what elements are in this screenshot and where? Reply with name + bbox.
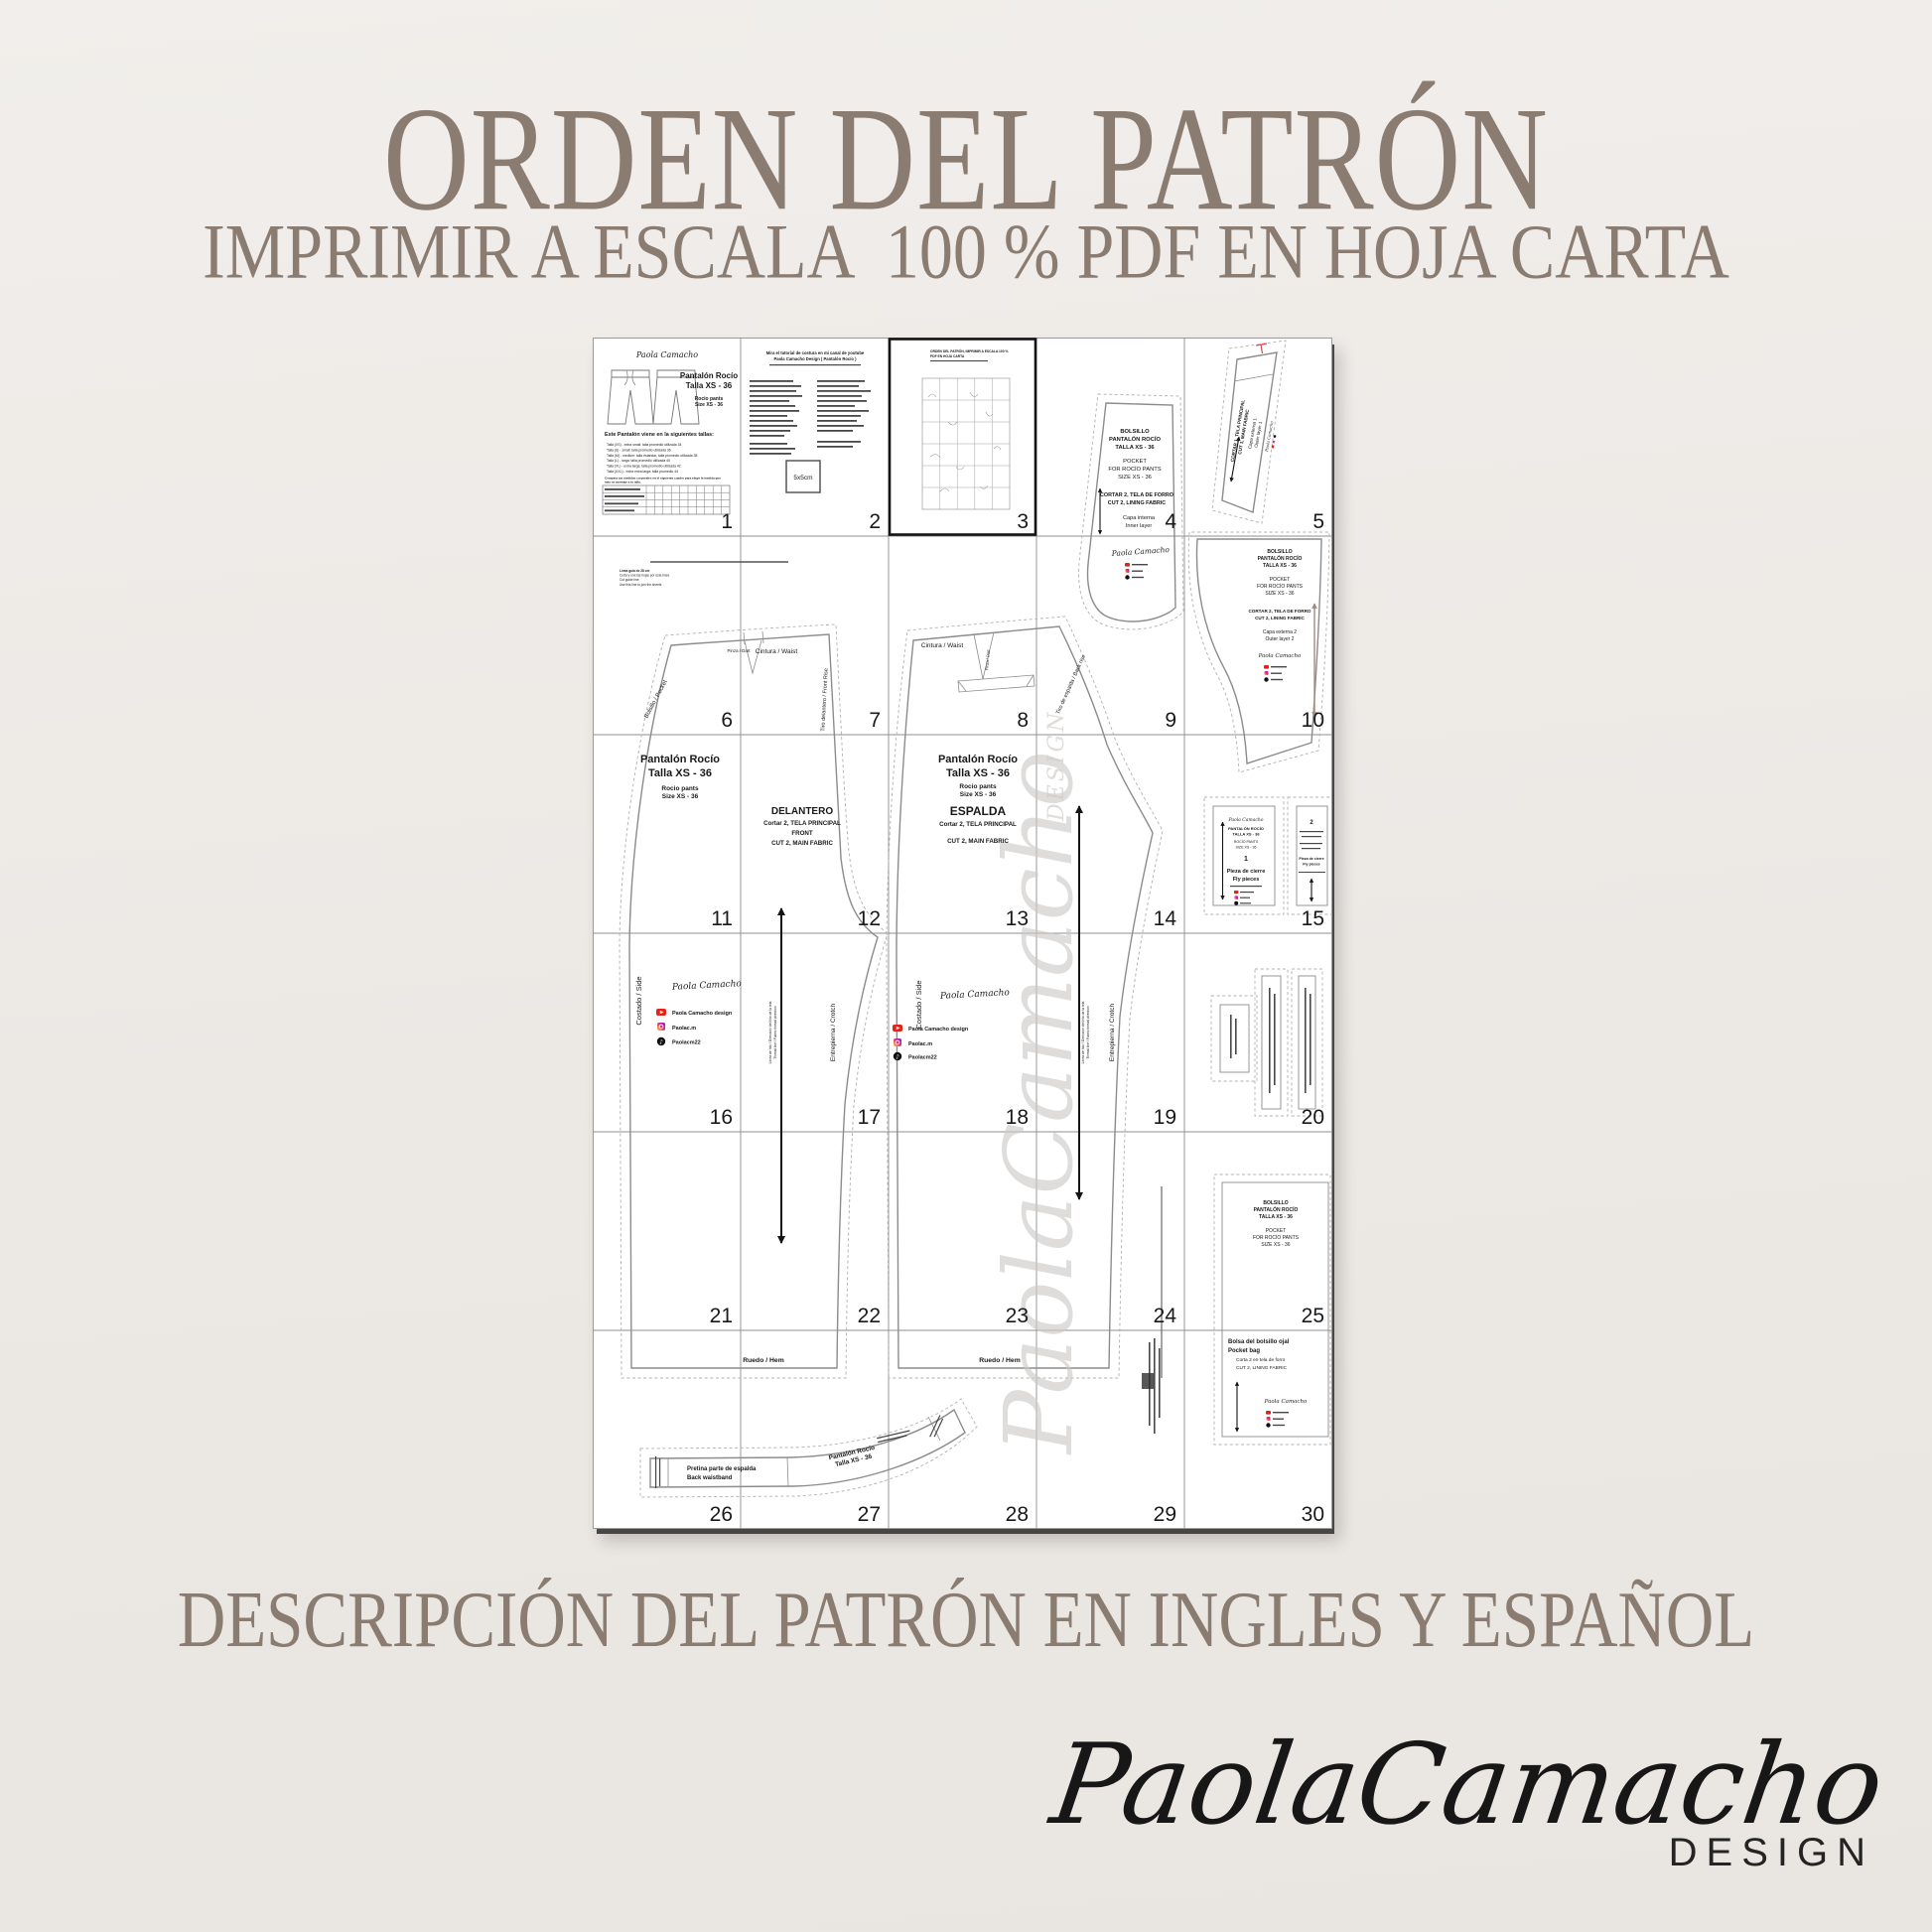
pocket-outer-line: CORTAR 2, TELA DE FORRO: [1248, 609, 1311, 614]
pocket-bag-welt-line: Corta 2 en tela de forro: [1236, 1357, 1286, 1363]
mini-piece-squiggle: [994, 447, 1001, 450]
page1-info: Paola Camacho Pantalón Rocío Talla XS - …: [605, 350, 738, 483]
sizes-heading: Este Pantalón viene en la siguientes tal…: [605, 432, 714, 438]
pocket-bag-welt-line: CUT 2, LINING FABRIC: [1236, 1365, 1288, 1371]
micro-text-bar: [1230, 1015, 1232, 1058]
guide-note: Cut guide line: [620, 578, 639, 582]
micro-text-bar: [1159, 1348, 1161, 1418]
page-number: 6: [721, 709, 733, 732]
test-square-label: 5x5cm: [793, 475, 812, 482]
waistband-front-piece: CORTAR 1, TELA PRINCIPAL CUT 1, MAIN FAB…: [1212, 341, 1286, 523]
micro-text-bar: [817, 385, 859, 387]
pocket-outer-line: CUT 2, LINING FABRIC: [1255, 616, 1305, 621]
micro-text-bar: [1310, 994, 1311, 1085]
youtube-icon: [1266, 1411, 1271, 1415]
footer-description: DESCRIPCIÓN DEL PATRÓN EN INGLES Y ESPAÑ…: [0, 1575, 1932, 1666]
micro-text-bar: [1269, 988, 1271, 1093]
order-heading: ORDEN DEL PATRÓN, IMPRIMIR A ESCALA 100 …: [930, 348, 1008, 353]
pocket-outer-line: SIZE XS - 36: [1265, 591, 1294, 597]
pocket-inner-line: Inner layer: [1126, 523, 1153, 529]
join-guide: Línea guía de 28 cm Corta y une las hoja…: [620, 562, 788, 587]
page-number: 23: [1006, 1305, 1029, 1327]
pocket-outer-line: Outer layer 2: [1266, 636, 1295, 642]
social-links-mini: [1234, 891, 1254, 905]
page-number: 12: [858, 907, 881, 930]
page-number: 22: [858, 1305, 881, 1327]
order-heading: PDF EN HOJA CARTA: [930, 354, 965, 358]
pocket-bag-line: SIZE XS - 36: [1261, 1242, 1290, 1248]
tiktok-icon: [1234, 901, 1238, 905]
pocket-inner-line: SIZE XS - 36: [1118, 475, 1152, 481]
label-dart-back: Pinza / Dart: [984, 648, 991, 670]
pattern-name-es: Pantalón Rocío: [680, 371, 738, 380]
micro-text-bar: [605, 502, 638, 504]
front-size: Talla XS - 36: [648, 767, 712, 779]
back-size: Talla XS - 36: [946, 767, 1010, 779]
micro-text-bar: [817, 380, 865, 382]
brand-signature: PaolaCamacho: [1045, 1729, 1890, 1841]
micro-text-bar: [817, 425, 864, 427]
mini-piece-squiggle: [970, 392, 978, 397]
mini-piece-squiggle: [986, 412, 993, 416]
back-name: Pantalón Rocío: [938, 754, 1018, 765]
youtube-icon: [1264, 665, 1269, 669]
micro-text-bar: [817, 415, 861, 417]
front-outline: [629, 634, 878, 1368]
brand-logo: PaolaCamacho DESIGN: [1045, 1729, 1874, 1875]
fly-label: Fly pieces: [1233, 877, 1260, 883]
svg-text:♪: ♪: [896, 1053, 899, 1060]
pattern-size-en: Size XS - 36: [695, 402, 723, 408]
micro-text-bar: [750, 400, 789, 402]
signature-script: Paola Camacho: [1110, 545, 1170, 558]
signature-script: Paola Camacho: [635, 350, 698, 359]
micro-text-bar: [1149, 1342, 1151, 1426]
guide-note: Use this line to join the sheets: [620, 583, 662, 587]
micro-text-bar: [1274, 994, 1276, 1085]
micro-text-bar: [750, 453, 791, 455]
front-piece-label-en: FRONT: [791, 830, 813, 837]
label-waist-front: Cintura / Waist: [756, 648, 798, 655]
label-grainline: Línea de hilo / Dirección del hilo de la…: [1081, 1002, 1085, 1064]
front-name-en: Rocio pants: [661, 785, 699, 792]
back-size-en: Size XS - 36: [960, 791, 997, 798]
fly-name: SIZE XS - 36: [1236, 846, 1257, 850]
front-dart: [745, 640, 761, 673]
label-back-rise: Tiro de espalda / Back rise: [1055, 654, 1087, 716]
page-number: 21: [710, 1305, 733, 1327]
size-line: Talla (L) - larga: talla promedio utiliz…: [607, 459, 670, 463]
micro-text-bars: [603, 378, 1311, 1434]
pocket-bag-welt-line: Pocket bag: [1228, 1348, 1260, 1354]
back-piece-label: ESPALDA: [950, 804, 1007, 818]
waistband-back-piece: Pretina parte de espalda Back waistband …: [640, 1399, 977, 1497]
label-grainline: Thread line / Fabric thread direction: [1086, 1006, 1090, 1059]
pocket-bag-welt-line: Bolsa del bolsillo ojal: [1228, 1339, 1290, 1345]
print-instruction: IMPRIMIR A ESCALA 100 % PDF EN HOJA CART…: [0, 207, 1932, 297]
instagram-icon: [657, 1023, 665, 1031]
front-cut-en: CUT 2, MAIN FABRIC: [771, 840, 833, 847]
label-grainline: Línea de hilo / Dirección del hilo de la…: [768, 1002, 772, 1064]
pocket-outer-line: Capa externa 2: [1263, 629, 1297, 635]
instagram-icon: [1234, 896, 1238, 899]
fly-name: PANTALÓN ROCÍO: [1228, 826, 1264, 831]
waistband-back-label: Pretina parte de espalda: [687, 1466, 757, 1472]
size-line: Talla (XXL) - extra extra larga: talla p…: [607, 470, 678, 474]
micro-text-bar: [817, 390, 871, 392]
micro-text-bar: [750, 380, 793, 382]
page-number: 19: [1154, 1106, 1176, 1129]
micro-text-bar: [750, 425, 797, 427]
back-cut-es: Cortar 2, TELA PRINCIPAL: [939, 821, 1017, 828]
size-line: Talla (M) - medium: talla estandar, tall…: [607, 454, 698, 458]
micro-text-bar: [817, 446, 853, 448]
micro-text-bar: [817, 420, 857, 422]
micro-text-bar: [750, 395, 802, 397]
size-line: Talla (XL) - extra larga: talla promedio…: [607, 465, 681, 469]
waistband-back-label: Back waistband: [687, 1475, 733, 1481]
tiktok-icon: [1264, 677, 1268, 681]
page-number: 9: [1165, 709, 1176, 732]
front-piece: [620, 624, 888, 1378]
back-cut-en: CUT 2, MAIN FABRIC: [947, 838, 1009, 845]
youtube-handle: Paola Camacho design: [908, 1027, 969, 1033]
micro-text-bar: [750, 448, 795, 450]
guide-note: Corta y une las hojas por esta línea: [620, 574, 669, 578]
fly-pieces: Paola Camacho PANTALÓN ROCÍO TALLA XS - …: [1204, 797, 1332, 914]
label-front-rise: Tiro delantero / Front Rise: [820, 668, 829, 732]
fly-number: 2: [1310, 820, 1313, 826]
tiktok-handle: Paolacm22: [672, 1040, 701, 1046]
signature-script: Paola Camacho: [1228, 817, 1264, 823]
micro-text-bar: [750, 405, 795, 407]
micro-text-bar: [750, 435, 784, 437]
pocket-inner-line: CUT 2, LINING FABRIC: [1108, 500, 1167, 506]
page-number: 16: [710, 1106, 733, 1129]
label-dart-front: Pinza / Dart: [728, 648, 752, 653]
page-number: 2: [869, 510, 881, 533]
micro-text-bar: [605, 495, 644, 497]
pocket-bag-line: PANTALÓN ROCÍO: [1254, 1205, 1299, 1213]
micro-text-bar: [605, 488, 640, 490]
page-number: 3: [1017, 510, 1029, 533]
pocket-inner-line: CORTAR 2, TELA DE FORRO: [1100, 492, 1173, 498]
guide-note: Línea guía de 28 cm: [620, 569, 649, 573]
social-links-front: Paola Camacho Paola Camacho design Paola…: [656, 979, 743, 1045]
label-pocket: Bolsillo / Pocket: [644, 679, 669, 720]
micro-text-bar: [1154, 1338, 1156, 1434]
micro-text-bar: [817, 405, 855, 407]
signature-script: Paola Camacho: [1264, 1399, 1308, 1405]
micro-text-bar: [750, 390, 796, 392]
welt-pocket: [958, 675, 1035, 692]
pocket-outer-line: POCKET: [1270, 577, 1291, 583]
page-number: 11: [711, 907, 733, 930]
social-links-mini: [1264, 665, 1287, 682]
pocket-outer-line: BOLSILLO: [1267, 549, 1292, 555]
size-line: Talla (XS) - extra small: talla promedio…: [607, 443, 681, 447]
fly-label: Pieza de cierre: [1299, 857, 1323, 861]
micro-text-bar: [1235, 1019, 1237, 1054]
fly-number: 1: [1244, 856, 1248, 863]
page-number: 26: [710, 1503, 733, 1526]
pocket-bag-line: TALLA XS - 36: [1259, 1214, 1293, 1220]
label-crotch-front: Entrepierna / Crotch: [830, 1004, 837, 1062]
size-line: Talla (S) - small: talla promedio utiliz…: [607, 448, 671, 452]
pin-mark: [1256, 344, 1267, 353]
label-crotch-back: Entrepierna / Crotch: [1109, 1004, 1116, 1062]
micro-text-bar: [750, 415, 787, 417]
mini-piece-squiggle: [980, 485, 988, 488]
micro-text-bar: [817, 400, 867, 402]
pattern-size-es: Talla XS - 36: [686, 381, 733, 390]
page-number: 7: [869, 709, 881, 732]
page-number: 8: [1017, 709, 1029, 732]
front-piece-label: DELANTERO: [771, 806, 833, 817]
pants-sketch-front: [608, 370, 653, 424]
micro-text-bar: [817, 410, 869, 412]
label-hem-back: Ruedo / Hem: [979, 1357, 1021, 1364]
tutorial-heading: Mira el tutorial de costura en mi canal …: [766, 350, 865, 355]
dense-text-block: [1142, 1373, 1154, 1389]
pocket-inner-line: FOR ROCÍO PANTS: [1108, 466, 1161, 473]
instagram-icon: [894, 1038, 901, 1046]
instagram-handle: Paolac.m: [908, 1041, 932, 1047]
youtube-handle: Paola Camacho design: [672, 1011, 733, 1017]
pocket-inner-line: BOLSILLO: [1120, 429, 1150, 435]
micro-text-bar: [750, 410, 799, 412]
grid-lines: [593, 338, 1332, 1529]
page3-highlight-border: [890, 340, 1035, 535]
fly-name: TALLA XS - 36: [1232, 832, 1260, 837]
signature-script: Paola Camacho: [671, 979, 743, 993]
instagram-handle: Paolac.m: [672, 1026, 696, 1032]
front-cut-es: Cortar 2, TELA PRINCIPAL: [763, 820, 841, 827]
front-seam-allowance: [620, 624, 888, 1378]
pocket-bag-line: BOLSILLO: [1263, 1200, 1288, 1206]
page-number: 30: [1302, 1503, 1324, 1526]
micro-text-bar: [1305, 988, 1307, 1093]
pocket-inner-line: PANTALÓN ROCÍO: [1109, 435, 1161, 443]
pocket-inner-line: Capa interna: [1123, 515, 1156, 521]
page-number: 17: [858, 1106, 881, 1129]
micro-text-bar: [750, 420, 793, 422]
page-number: 27: [858, 1503, 881, 1526]
pocket-inner-line: POCKET: [1123, 459, 1147, 465]
page-number: 18: [1006, 1106, 1029, 1129]
page3-info: ORDEN DEL PATRÓN, IMPRIMIR A ESCALA 100 …: [930, 348, 1008, 361]
watermark-script: PaolaCamacho: [985, 751, 1094, 1455]
tiktok-icon: [1125, 575, 1129, 579]
pocket-bag-line: FOR ROCÍO PANTS: [1253, 1234, 1300, 1241]
page-number: 14: [1154, 907, 1177, 930]
page-number: 20: [1302, 1106, 1324, 1129]
mini-piece-squiggle: [928, 394, 936, 397]
mini-piece-squiggle: [940, 488, 949, 491]
micro-text-bar: [750, 430, 790, 432]
page-number: 25: [1302, 1305, 1324, 1327]
page-number: 5: [1312, 510, 1324, 533]
youtube-icon: [1125, 563, 1130, 567]
micro-text-bar: [817, 430, 853, 432]
tiktok-handle: Paolacm22: [908, 1055, 937, 1061]
mini-piece-squiggle: [930, 455, 940, 458]
micro-text-bar: [605, 509, 634, 511]
fly-label: Fly pieces: [1303, 862, 1319, 866]
tiktok-icon: [1266, 1423, 1270, 1427]
fly-label: Pieza de cierre: [1227, 869, 1266, 875]
label-hem-front: Ruedo / Hem: [743, 1357, 784, 1364]
pocket-piece-outer: BOLSILLO PANTALÓN ROCÍO TALLA XS - 36 PO…: [1188, 532, 1329, 772]
back-dart: [974, 632, 994, 679]
fly-name: ROCÍO PANTS: [1234, 840, 1259, 844]
label-grainline: Thread line / Fabric thread direction: [773, 1006, 777, 1059]
front-name: Pantalón Rocío: [640, 754, 720, 765]
page-number: 10: [1302, 709, 1324, 732]
instagram-icon: [1267, 1417, 1271, 1421]
label-waist-back: Cintura / Waist: [921, 642, 964, 649]
page-number: 24: [1154, 1305, 1177, 1327]
pocket-inner-line: TALLA XS - 36: [1115, 445, 1155, 451]
micro-text-bar: [750, 443, 787, 445]
label-side-back: Costado / Side: [914, 980, 923, 1029]
instagram-icon: [1265, 671, 1269, 675]
page-number: 1: [721, 510, 733, 533]
page-number: 29: [1154, 1503, 1176, 1526]
label-side-front: Costado / Side: [634, 976, 643, 1025]
page-number: 15: [1302, 907, 1324, 930]
micro-text-bar: [817, 395, 862, 397]
page-number: 13: [1006, 907, 1029, 930]
pocket-outer-line: PANTALÓN ROCÍO: [1258, 554, 1303, 562]
page-number: 4: [1165, 510, 1176, 533]
size-note: más se asemeje a tu talla.: [605, 480, 641, 483]
pattern-grid-svg: Paola Camacho Pantalón Rocío Talla XS - …: [593, 338, 1332, 1529]
instagram-icon: [1273, 441, 1276, 444]
tutorial-heading: Paola Camacho Design ( Pantalón Rocío ): [773, 356, 857, 361]
page-number: 28: [1006, 1503, 1029, 1526]
social-links-mini: [1266, 1411, 1289, 1428]
watermark-design: DESIGN: [1044, 710, 1069, 822]
back-name-en: Rocio pants: [959, 783, 997, 790]
signature-script: Paola Camacho: [1258, 653, 1302, 659]
svg-text:♪: ♪: [659, 1038, 663, 1045]
pattern-sheet: Paola Camacho Pantalón Rocío Talla XS - …: [593, 338, 1332, 1529]
pocket-outer-line: FOR ROCÍO PANTS: [1257, 583, 1304, 590]
pocket-outer-line: TALLA XS - 36: [1263, 563, 1297, 569]
micro-text-bar: [750, 385, 801, 387]
mini-piece-squiggle: [948, 422, 957, 425]
pocket-bag-line: POCKET: [1266, 1228, 1287, 1234]
social-links-mini: [1125, 563, 1148, 580]
front-size-en: Size XS - 36: [662, 793, 699, 800]
micro-text-bar: [817, 441, 861, 443]
poster: ORDEN DEL PATRÓN IMPRIMIR A ESCALA 100 %…: [0, 0, 1932, 1932]
instagram-icon: [1126, 569, 1130, 573]
youtube-icon: [1234, 891, 1238, 894]
